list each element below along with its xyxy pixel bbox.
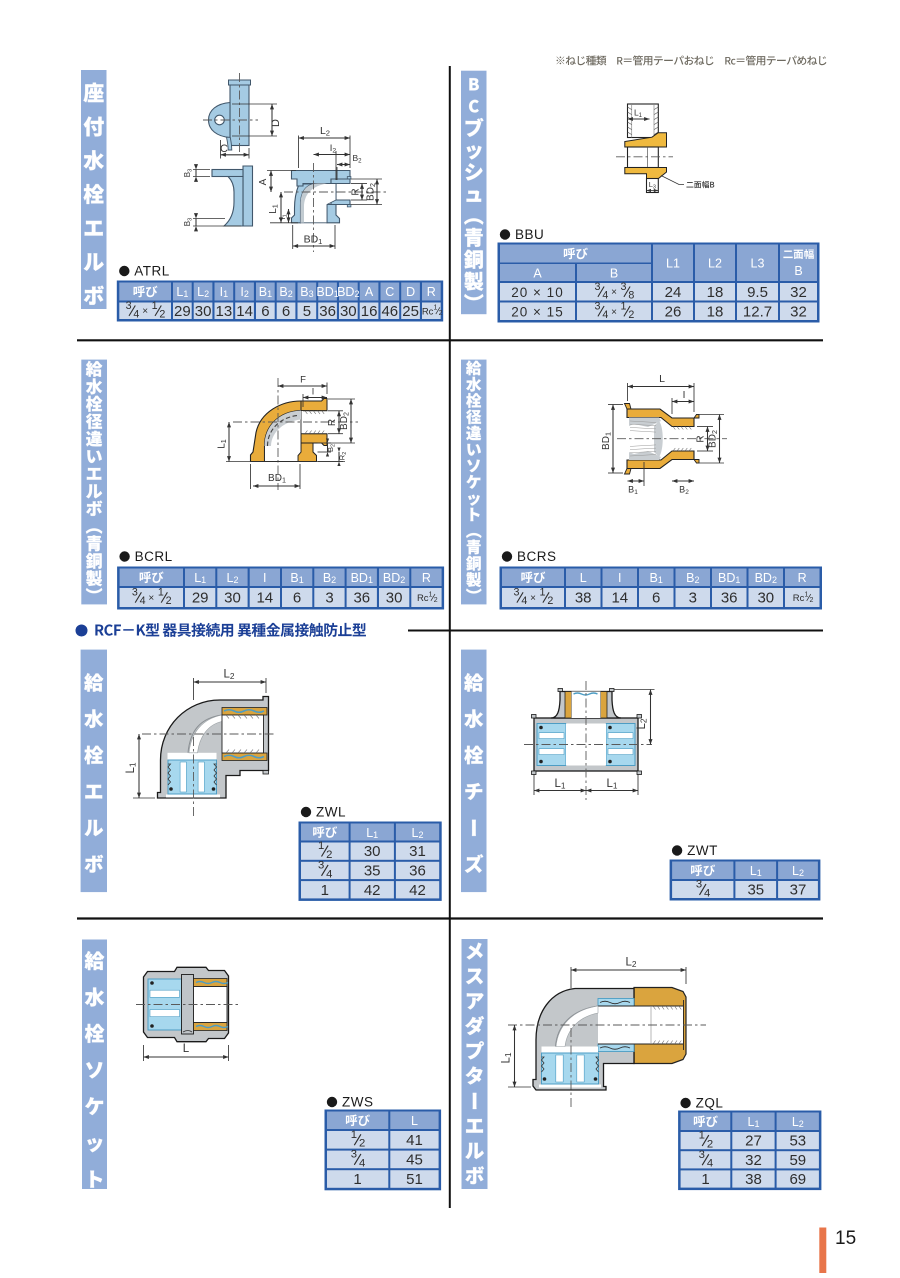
svg-text:35: 35 [747, 882, 764, 899]
svg-text:36: 36 [353, 590, 370, 607]
svg-text:1: 1 [158, 587, 164, 599]
svg-text:3: 3 [696, 879, 702, 891]
svg-text:36: 36 [721, 590, 738, 607]
svg-text:ZQL: ZQL [696, 1096, 724, 1111]
svg-text:3: 3 [514, 587, 520, 599]
svg-text:R: R [798, 571, 807, 585]
svg-text:B1: B1 [628, 485, 638, 497]
svg-text:9.5: 9.5 [747, 284, 768, 301]
svg-text:2: 2 [359, 1138, 365, 1150]
svg-text:4: 4 [602, 309, 608, 321]
svg-text:30: 30 [757, 590, 774, 607]
svg-text:69: 69 [789, 1171, 806, 1188]
svg-text:1: 1 [429, 591, 433, 598]
svg-text:12.7: 12.7 [743, 303, 772, 320]
svg-text:D: D [406, 285, 415, 299]
svg-text:1: 1 [540, 587, 546, 599]
svg-text:36: 36 [319, 303, 336, 320]
svg-text:29: 29 [174, 303, 191, 320]
svg-text:38: 38 [745, 1171, 762, 1188]
svg-text:I: I [618, 571, 621, 585]
svg-text:R: R [427, 285, 436, 299]
svg-text:6: 6 [282, 303, 290, 320]
svg-text:L1: L1 [125, 762, 138, 773]
svg-text:1: 1 [152, 300, 158, 312]
svg-text:30: 30 [224, 590, 241, 607]
svg-text:L1: L1 [666, 257, 680, 271]
svg-text:1: 1 [805, 591, 809, 598]
svg-text:3: 3 [325, 590, 333, 607]
svg-text:30: 30 [340, 303, 357, 320]
svg-text:4: 4 [602, 289, 608, 301]
svg-text:R: R [351, 188, 362, 195]
svg-text:B: B [610, 266, 618, 280]
svg-text:36: 36 [409, 862, 426, 879]
svg-text:L1: L1 [501, 1052, 514, 1063]
svg-text:A: A [365, 285, 374, 299]
svg-text:B2: B2 [352, 153, 362, 165]
svg-text:20 × 15: 20 × 15 [511, 304, 563, 319]
svg-text:14: 14 [611, 590, 628, 607]
svg-text:42: 42 [409, 882, 426, 899]
svg-text:2: 2 [159, 308, 165, 320]
svg-text:1: 1 [351, 1129, 357, 1141]
svg-text:35: 35 [364, 862, 381, 879]
svg-text:C: C [220, 143, 228, 155]
svg-text:L1: L1 [554, 778, 565, 791]
svg-text:1: 1 [621, 300, 627, 312]
svg-text:6: 6 [293, 590, 301, 607]
svg-text:1: 1 [701, 1171, 709, 1188]
svg-text:Rc: Rc [793, 593, 805, 604]
svg-text:ATRL: ATRL [134, 264, 170, 279]
svg-text:BD1: BD1 [601, 432, 613, 450]
svg-text:6: 6 [652, 590, 660, 607]
svg-text:R: R [696, 435, 707, 442]
svg-text:4: 4 [140, 595, 146, 607]
svg-text:BD1: BD1 [304, 234, 323, 247]
svg-text:13: 13 [216, 303, 233, 320]
svg-text:2: 2 [439, 310, 443, 317]
svg-text:14: 14 [256, 590, 273, 607]
svg-text:I: I [683, 390, 686, 401]
svg-text:6: 6 [261, 303, 269, 320]
svg-text:I2: I2 [330, 143, 337, 155]
svg-text:4: 4 [133, 308, 139, 320]
svg-text:3: 3 [699, 1149, 705, 1161]
svg-text:2: 2 [628, 309, 634, 321]
svg-text:16: 16 [361, 303, 378, 320]
svg-text:3: 3 [351, 1149, 357, 1161]
svg-text:3: 3 [595, 300, 601, 312]
svg-text:45: 45 [406, 1151, 423, 1168]
svg-text:R: R [327, 419, 338, 426]
svg-text:3: 3 [318, 860, 324, 872]
svg-text:30: 30 [195, 303, 212, 320]
svg-text:30: 30 [364, 843, 381, 860]
svg-text:L2: L2 [223, 669, 234, 682]
svg-text:ZWL: ZWL [316, 805, 346, 820]
svg-text:2: 2 [326, 849, 332, 861]
svg-text:15: 15 [835, 1228, 856, 1249]
svg-text:I: I [263, 571, 266, 585]
svg-text:ZWS: ZWS [342, 1095, 374, 1110]
svg-text:L: L [183, 1043, 190, 1055]
svg-text:4: 4 [704, 887, 710, 899]
svg-text:BCRS: BCRS [517, 549, 557, 564]
svg-text:L1: L1 [268, 204, 280, 214]
svg-text:×: × [611, 287, 617, 298]
svg-text:1: 1 [321, 882, 329, 899]
svg-text:41: 41 [406, 1132, 423, 1149]
svg-text:A: A [258, 178, 269, 185]
svg-text:ZWT: ZWT [687, 843, 718, 858]
svg-text:F: F [300, 375, 306, 386]
svg-text:4: 4 [326, 868, 332, 880]
svg-text:59: 59 [789, 1152, 806, 1169]
svg-text:26: 26 [665, 303, 682, 320]
svg-text:L2: L2 [636, 718, 649, 729]
svg-text:51: 51 [406, 1171, 423, 1188]
svg-text:L2: L2 [708, 257, 722, 271]
svg-text:18: 18 [707, 284, 724, 301]
svg-text:Rc: Rc [417, 593, 429, 604]
svg-text:27: 27 [745, 1133, 762, 1150]
svg-text:4: 4 [359, 1157, 365, 1169]
svg-text:8: 8 [628, 289, 634, 301]
svg-text:4: 4 [521, 595, 527, 607]
svg-text:BCRL: BCRL [135, 549, 173, 564]
svg-text:I1: I1 [278, 214, 289, 219]
svg-text:1: 1 [434, 305, 438, 312]
svg-text:30: 30 [386, 590, 403, 607]
svg-text:L: L [580, 571, 587, 585]
svg-text:3: 3 [595, 281, 601, 293]
svg-text:42: 42 [364, 882, 381, 899]
svg-text:37: 37 [790, 882, 807, 899]
svg-text:1: 1 [699, 1130, 705, 1142]
svg-text:×: × [530, 593, 536, 604]
svg-text:BD2: BD2 [708, 430, 720, 448]
svg-text:L: L [411, 1114, 418, 1128]
svg-text:2: 2 [547, 595, 553, 607]
svg-text:Rc: Rc [422, 306, 434, 317]
svg-text:B3: B3 [183, 218, 194, 227]
svg-text:A: A [533, 266, 542, 280]
svg-text:3: 3 [689, 590, 697, 607]
svg-text:32: 32 [790, 303, 807, 320]
svg-text:×: × [148, 593, 154, 604]
svg-text:25: 25 [402, 303, 419, 320]
svg-text:46: 46 [381, 303, 398, 320]
svg-text:32: 32 [790, 284, 807, 301]
svg-text:BD1: BD1 [268, 473, 286, 485]
svg-text:L2: L2 [320, 125, 330, 138]
svg-text:I: I [312, 387, 315, 397]
svg-text:24: 24 [665, 284, 682, 301]
svg-text:53: 53 [789, 1133, 806, 1150]
svg-text:5: 5 [303, 303, 311, 320]
svg-text:×: × [142, 306, 148, 317]
svg-text:L1: L1 [217, 439, 229, 449]
svg-text:20 × 10: 20 × 10 [511, 285, 563, 300]
svg-text:D: D [270, 119, 282, 127]
svg-text:BBU: BBU [515, 227, 544, 242]
svg-text:4: 4 [707, 1158, 713, 1170]
svg-text:B2: B2 [679, 485, 689, 497]
svg-text:B: B [794, 264, 802, 278]
svg-text:3: 3 [621, 281, 627, 293]
svg-text:2: 2 [810, 597, 814, 604]
svg-text:1: 1 [353, 1171, 361, 1188]
svg-text:38: 38 [575, 590, 592, 607]
svg-text:L2: L2 [625, 957, 636, 970]
svg-text:2: 2 [434, 597, 438, 604]
svg-text:1: 1 [318, 840, 324, 852]
svg-text:3: 3 [126, 300, 132, 312]
svg-text:2: 2 [707, 1139, 713, 1151]
svg-text:14: 14 [236, 303, 253, 320]
svg-text:×: × [611, 307, 617, 318]
svg-text:29: 29 [192, 590, 209, 607]
svg-text:31: 31 [409, 843, 426, 860]
svg-text:18: 18 [707, 303, 724, 320]
svg-text:L: L [659, 373, 665, 385]
svg-text:2: 2 [166, 595, 172, 607]
svg-text:BD2: BD2 [339, 412, 351, 430]
svg-text:L1: L1 [606, 778, 617, 791]
svg-text:3: 3 [132, 587, 138, 599]
svg-text:R: R [422, 571, 431, 585]
svg-text:BD2: BD2 [366, 183, 378, 201]
svg-text:B3: B3 [183, 169, 194, 178]
svg-text:32: 32 [745, 1152, 762, 1169]
svg-text:L3: L3 [751, 257, 765, 271]
svg-text:C: C [385, 285, 394, 299]
